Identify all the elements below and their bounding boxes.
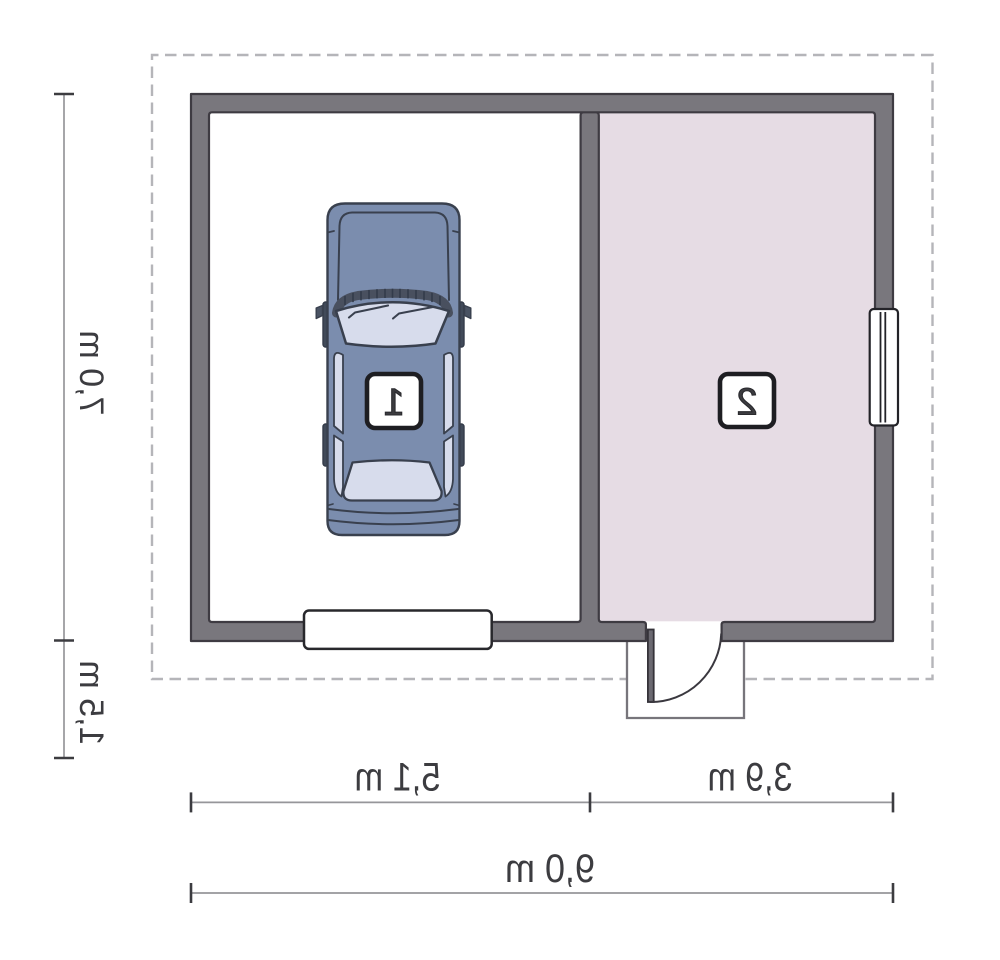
svg-text:1,5 m: 1,5 m [72,660,110,745]
svg-text:7,0 m: 7,0 m [72,330,110,415]
svg-text:2: 2 [736,382,757,424]
svg-text:9,0 m: 9,0 m [505,847,595,891]
svg-text:1: 1 [383,382,404,424]
svg-text:5,1 m: 5,1 m [355,756,441,800]
svg-text:3,9 m: 3,9 m [708,756,793,800]
